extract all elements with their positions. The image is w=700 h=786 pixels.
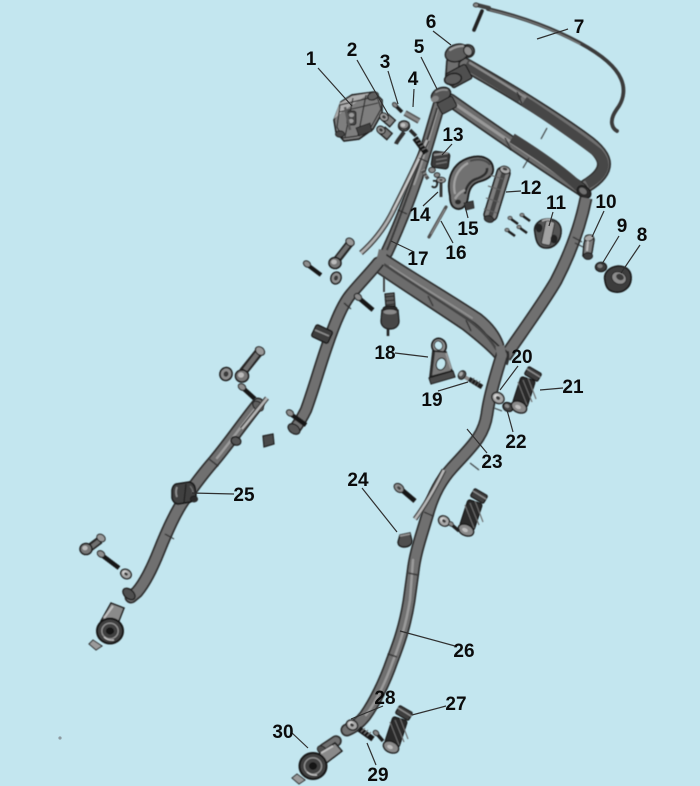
svg-text:3: 3 bbox=[380, 52, 391, 73]
svg-text:22: 22 bbox=[505, 432, 526, 453]
svg-text:11: 11 bbox=[546, 193, 567, 214]
svg-text:2: 2 bbox=[347, 40, 358, 61]
svg-text:30: 30 bbox=[272, 722, 293, 743]
svg-text:27: 27 bbox=[445, 694, 466, 715]
svg-text:16: 16 bbox=[445, 243, 466, 264]
svg-text:6: 6 bbox=[426, 12, 437, 33]
svg-text:20: 20 bbox=[511, 347, 532, 368]
svg-text:12: 12 bbox=[520, 178, 541, 199]
svg-text:4: 4 bbox=[408, 69, 419, 90]
svg-text:17: 17 bbox=[407, 249, 428, 270]
svg-text:7: 7 bbox=[574, 17, 585, 38]
svg-text:8: 8 bbox=[637, 225, 648, 246]
svg-text:19: 19 bbox=[421, 390, 442, 411]
svg-text:5: 5 bbox=[414, 37, 425, 58]
svg-text:26: 26 bbox=[453, 641, 474, 662]
svg-text:18: 18 bbox=[374, 343, 395, 364]
svg-text:14: 14 bbox=[409, 205, 431, 226]
svg-text:15: 15 bbox=[457, 219, 479, 240]
svg-text:9: 9 bbox=[617, 216, 628, 237]
svg-text:23: 23 bbox=[481, 452, 502, 473]
svg-text:10: 10 bbox=[595, 192, 616, 213]
svg-text:13: 13 bbox=[442, 125, 463, 146]
svg-text:28: 28 bbox=[374, 688, 395, 709]
svg-text:25: 25 bbox=[233, 485, 255, 506]
svg-text:29: 29 bbox=[367, 765, 388, 786]
svg-text:21: 21 bbox=[562, 377, 584, 398]
svg-text:24: 24 bbox=[347, 470, 369, 491]
svg-text:1: 1 bbox=[306, 49, 317, 70]
